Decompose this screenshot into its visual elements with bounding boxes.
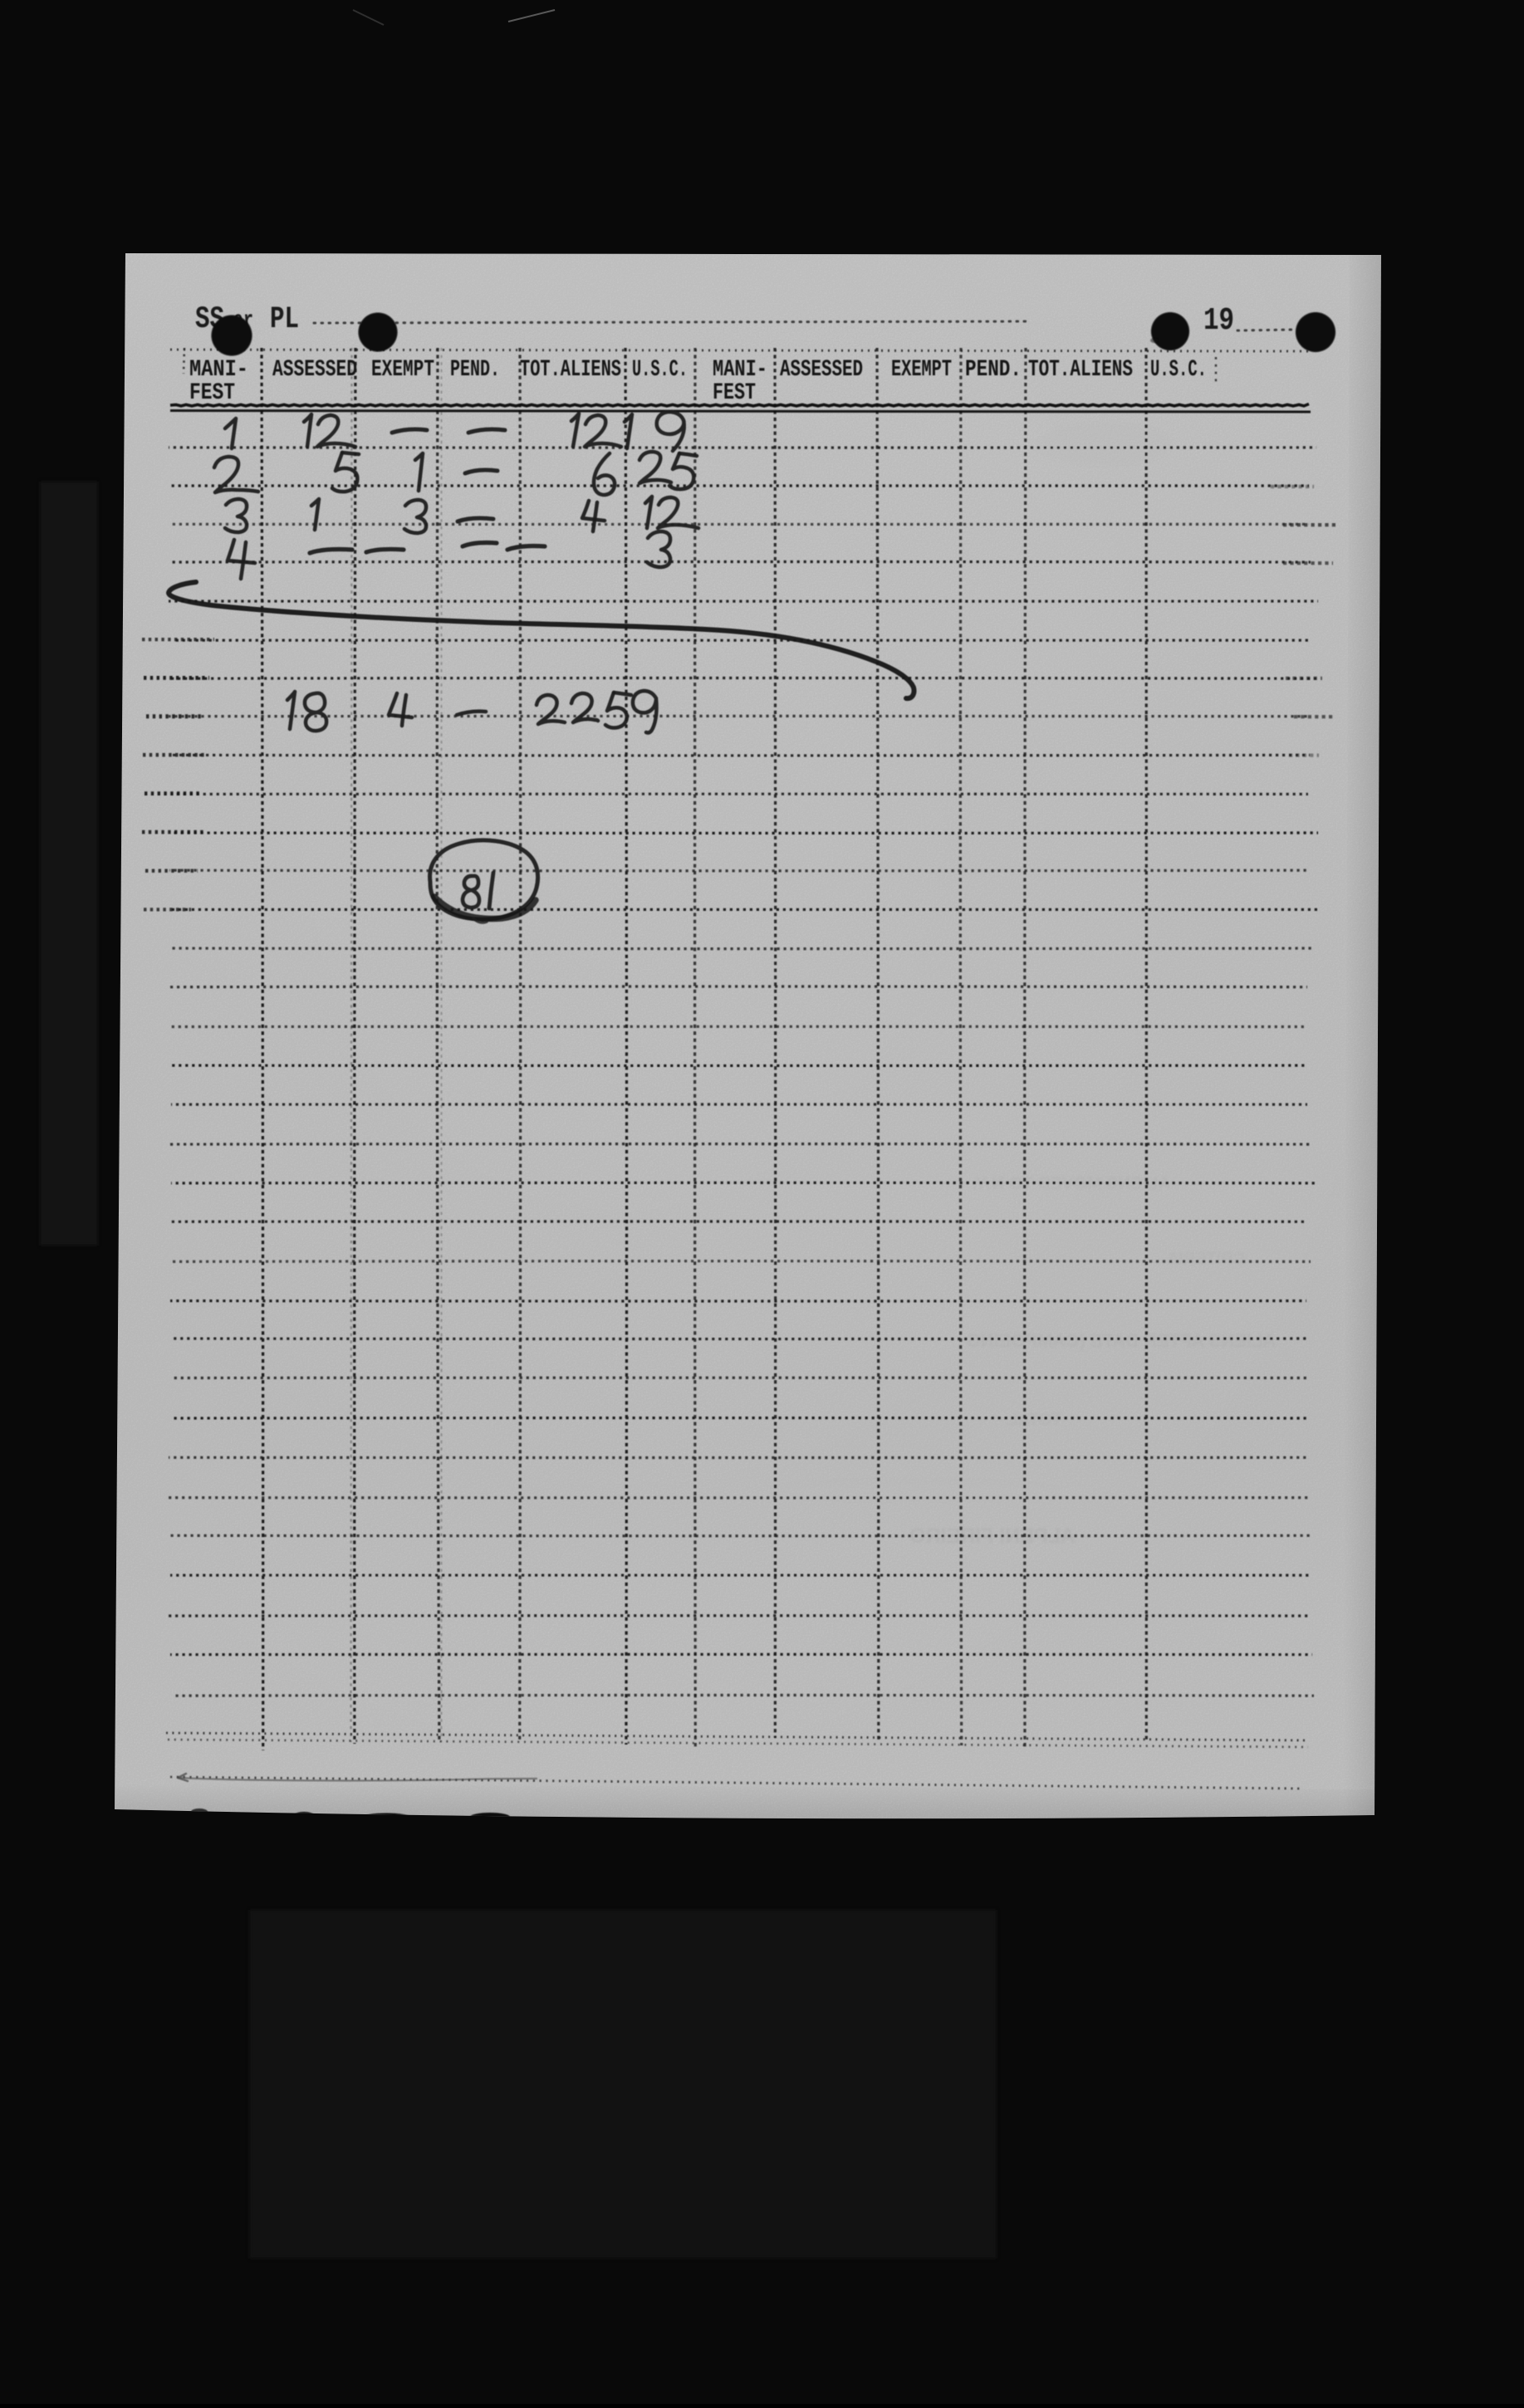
svg-text:TOTAL: TOTAL: [1008, 1411, 1062, 1429]
svg-text:ALPENI FIREIRO: ALPENI FIREIRO: [909, 1525, 1076, 1548]
svg-text:ASSESSED: ASSESSED: [272, 357, 357, 383]
svg-text:EXEMPT: EXEMPT: [371, 357, 434, 383]
svg-text:CRITERIA: CRITERIA: [1167, 1250, 1245, 1268]
svg-text:U.S.C.: U.S.C.: [1150, 357, 1207, 383]
svg-text:TOT.ALIENS: TOT.ALIENS: [1028, 357, 1133, 383]
svg-text:PEND.: PEND.: [450, 357, 500, 383]
svg-text:FEST: FEST: [713, 380, 756, 406]
svg-text:ASSESSED: ASSESSED: [780, 357, 863, 383]
svg-text:19: 19: [1203, 303, 1234, 339]
svg-text:EXEMPT: EXEMPT: [891, 357, 952, 383]
svg-text:MANI-: MANI-: [713, 357, 767, 383]
svg-text:TOT.ALIENS: TOT.ALIENS: [520, 357, 621, 383]
svg-text:PEND.: PEND.: [965, 357, 1022, 383]
svg-text:PL: PL: [270, 302, 299, 337]
svg-text:U.S.C.: U.S.C.: [632, 357, 688, 383]
svg-text:FEST: FEST: [189, 380, 235, 406]
svg-text:ALIENS AFTER DATE (CAMPOEING: ALIENS AFTER DATE (CAMPOEING: [967, 1330, 1277, 1351]
svg-text:MANI-: MANI-: [189, 357, 248, 383]
